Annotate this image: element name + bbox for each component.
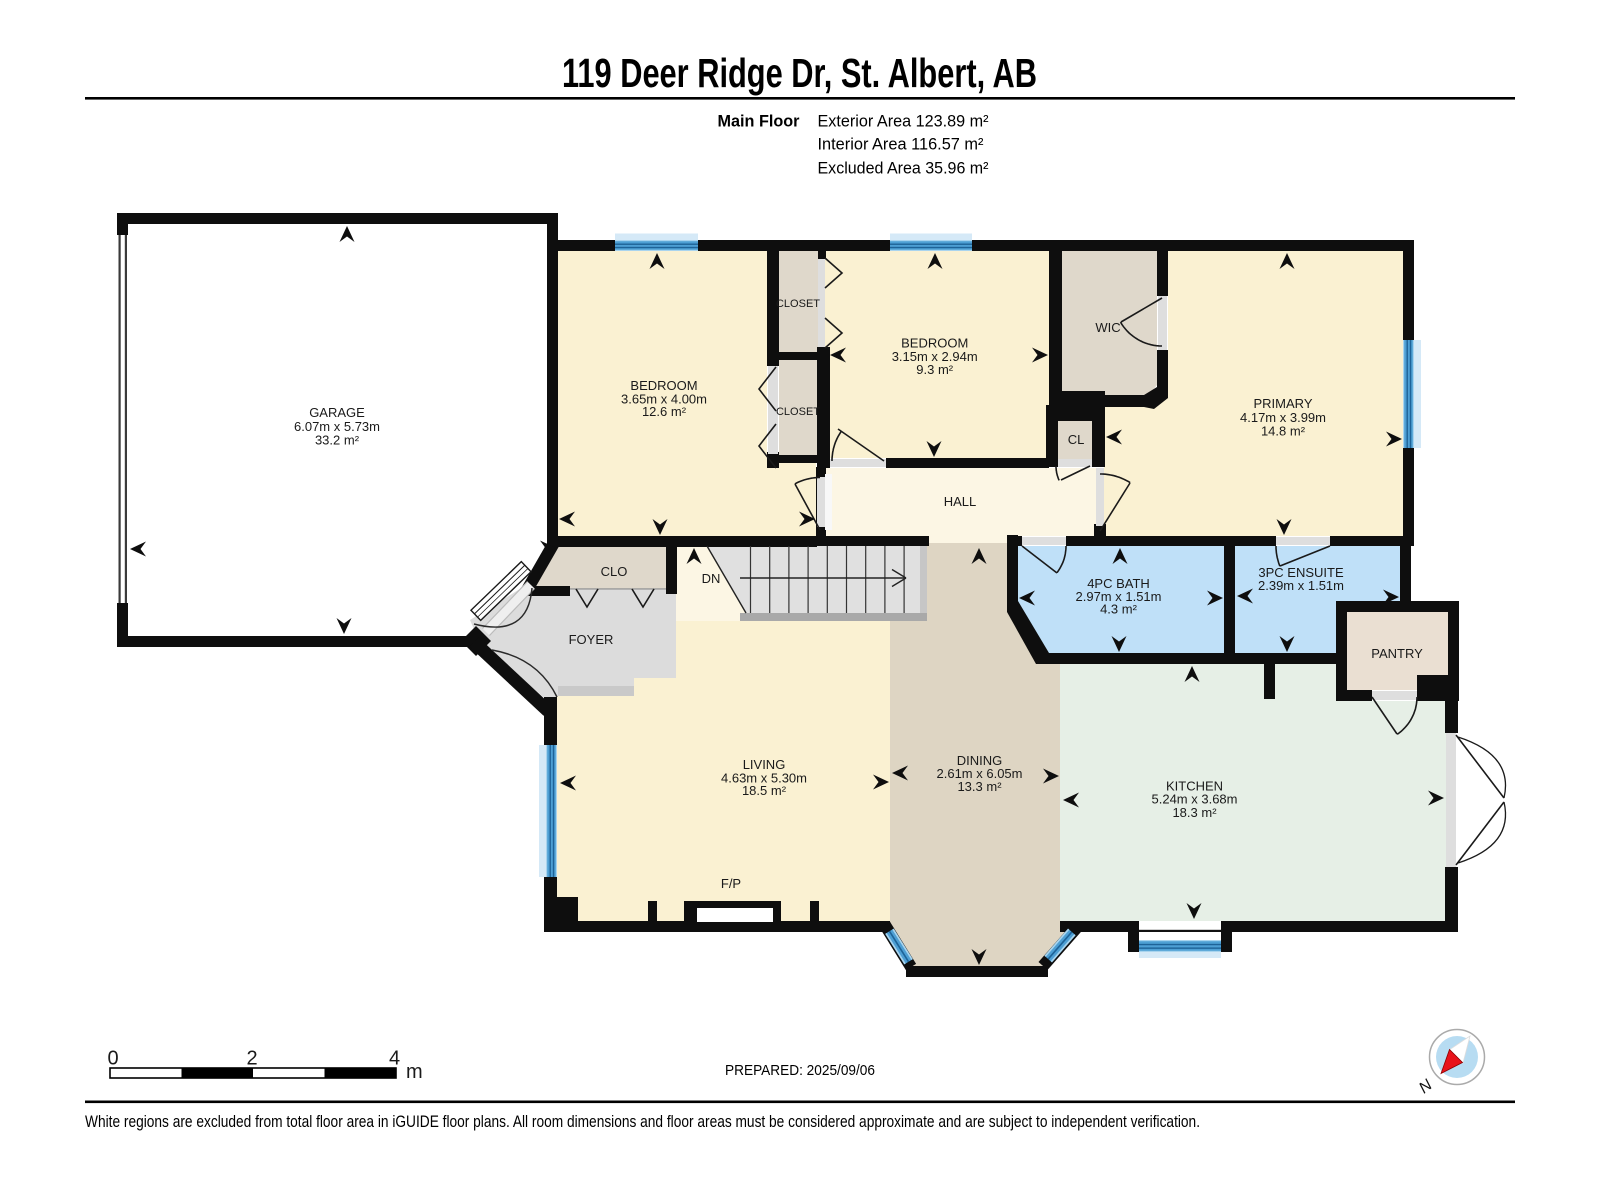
svg-text:12.6 m²: 12.6 m²: [642, 404, 687, 419]
svg-text:Main Floor: Main Floor: [718, 111, 800, 130]
svg-text:FOYER: FOYER: [569, 632, 614, 647]
svg-text:18.5 m²: 18.5 m²: [742, 783, 787, 798]
svg-text:119 Deer Ridge Dr, St. Albert,: 119 Deer Ridge Dr, St. Albert, AB: [562, 50, 1037, 96]
svg-text:CLOSET: CLOSET: [776, 406, 820, 418]
svg-text:CLOSET: CLOSET: [776, 298, 820, 310]
svg-text:18.3 m²: 18.3 m²: [1172, 805, 1217, 820]
svg-text:WIC: WIC: [1095, 320, 1120, 335]
svg-text:4: 4: [389, 1048, 400, 1070]
svg-text:GARAGE: GARAGE: [309, 405, 365, 420]
svg-text:HALL: HALL: [944, 494, 977, 509]
svg-text:Exterior Area 123.89 m²: Exterior Area 123.89 m²: [818, 111, 989, 130]
svg-text:4.3 m²: 4.3 m²: [1100, 602, 1138, 617]
svg-text:White regions are excluded fro: White regions are excluded from total fl…: [85, 1113, 1200, 1131]
svg-text:F/P: F/P: [721, 876, 741, 891]
svg-text:PANTRY: PANTRY: [1371, 646, 1423, 661]
svg-text:m: m: [406, 1061, 423, 1083]
svg-text:0: 0: [107, 1048, 118, 1070]
svg-text:9.3 m²: 9.3 m²: [916, 362, 954, 377]
svg-text:2: 2: [246, 1048, 257, 1070]
svg-text:PRIMARY: PRIMARY: [1254, 396, 1313, 411]
svg-text:Excluded Area 35.96 m²: Excluded Area 35.96 m²: [818, 159, 989, 178]
svg-text:13.3 m²: 13.3 m²: [957, 779, 1002, 794]
svg-text:PREPARED: 2025/09/06: PREPARED: 2025/09/06: [725, 1062, 875, 1079]
svg-text:Interior Area 116.57 m²: Interior Area 116.57 m²: [818, 135, 984, 154]
svg-text:CLO: CLO: [601, 564, 628, 579]
svg-text:14.8 m²: 14.8 m²: [1261, 424, 1306, 439]
svg-text:2.39m x 1.51m: 2.39m x 1.51m: [1258, 578, 1344, 593]
svg-text:DN: DN: [702, 571, 721, 586]
svg-text:33.2 m²: 33.2 m²: [315, 433, 360, 448]
svg-text:CL: CL: [1068, 432, 1085, 447]
